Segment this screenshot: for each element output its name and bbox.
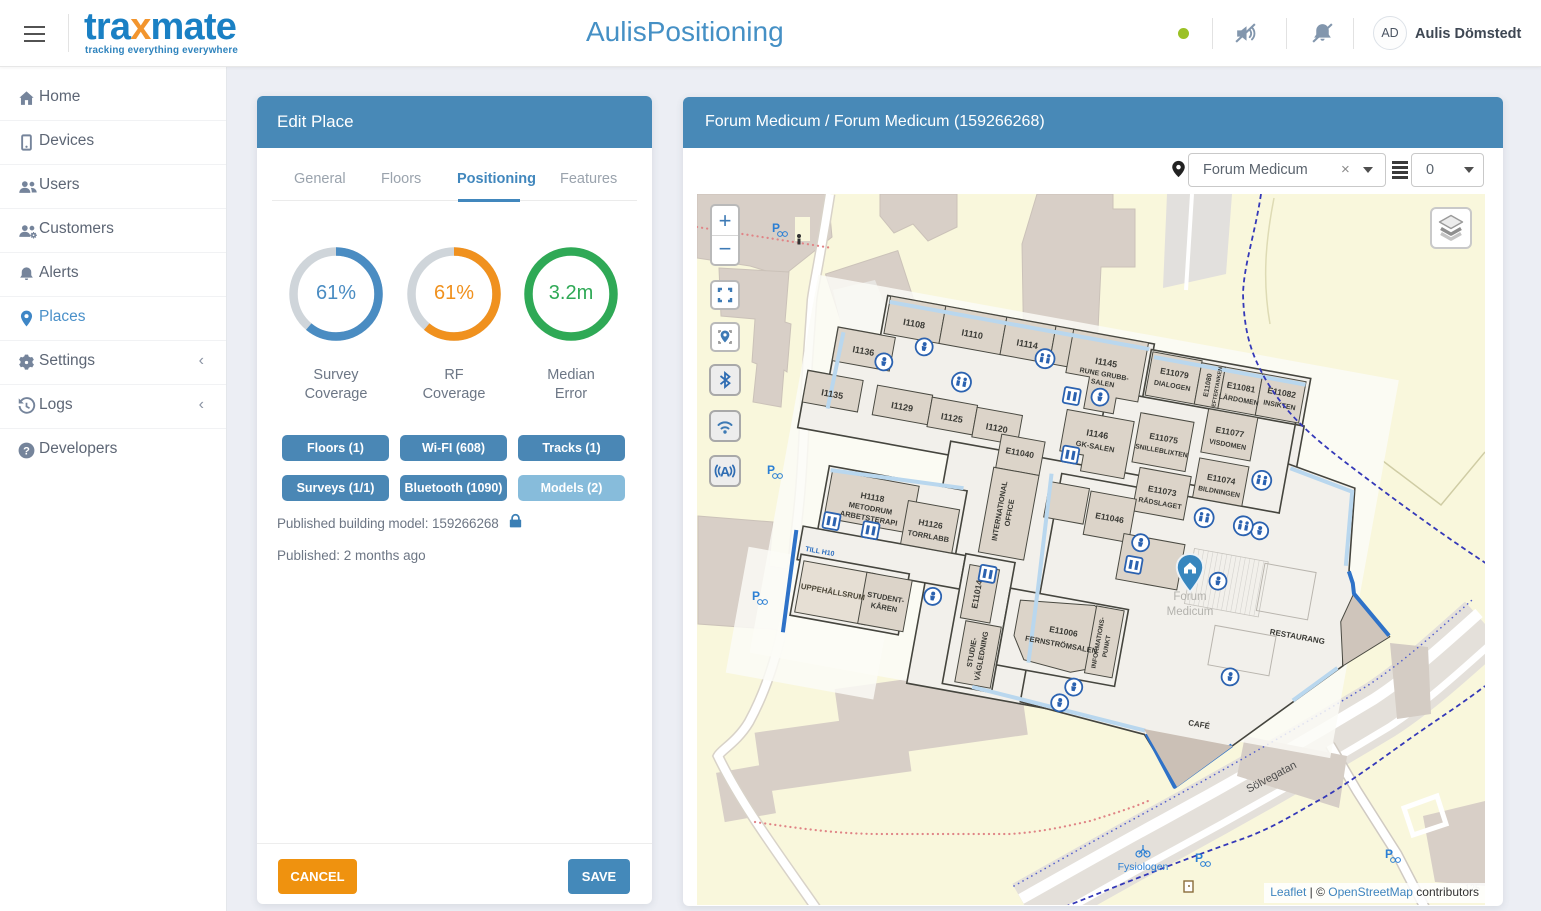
- svg-text:P: P: [752, 589, 760, 603]
- svg-text:?: ?: [23, 445, 30, 457]
- svg-text:P: P: [1195, 851, 1203, 865]
- svg-text:P: P: [1385, 847, 1393, 861]
- svg-text:Forum: Forum: [1173, 591, 1206, 603]
- svg-text:Medicum: Medicum: [1167, 606, 1214, 618]
- svg-text:P: P: [772, 221, 780, 235]
- svg-text:A: A: [720, 464, 730, 480]
- svg-text:Fysiologen: Fysiologen: [1118, 861, 1169, 873]
- svg-text:P: P: [767, 463, 775, 477]
